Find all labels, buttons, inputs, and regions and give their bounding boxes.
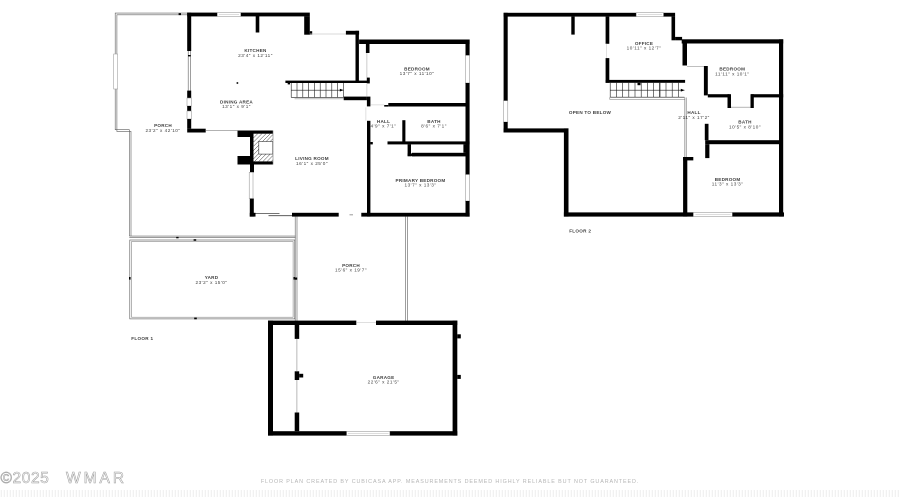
- svg-text:11'3" x 13'3": 11'3" x 13'3": [712, 182, 744, 187]
- svg-text:13'7" x 11'10": 13'7" x 11'10": [400, 71, 435, 76]
- svg-text:FLOOR 2: FLOOR 2: [569, 229, 591, 234]
- svg-text:22'6" x 21'5": 22'6" x 21'5": [368, 379, 400, 384]
- svg-text:23'2" x 42'10": 23'2" x 42'10": [145, 128, 180, 133]
- svg-text:8'6" x 7'1": 8'6" x 7'1": [421, 123, 447, 128]
- svg-text:FLOOR PLAN CREATED BY CUBICASA: FLOOR PLAN CREATED BY CUBICASA APP. MEAS…: [261, 479, 639, 485]
- svg-text:2'11" x 17'2": 2'11" x 17'2": [678, 115, 710, 120]
- svg-text:16'1" x 25'0": 16'1" x 25'0": [296, 161, 328, 166]
- svg-text:4'9" x 7'1": 4'9" x 7'1": [371, 123, 397, 128]
- svg-text:WMAR: WMAR: [66, 470, 127, 487]
- svg-text:FLOOR 1: FLOOR 1: [131, 336, 153, 341]
- svg-text:13'1" x 9'1": 13'1" x 9'1": [222, 104, 251, 109]
- svg-text:10'5" x 8'10": 10'5" x 8'10": [729, 125, 761, 130]
- svg-text:13'7" x 13'3": 13'7" x 13'3": [405, 183, 437, 188]
- svg-text:10'11" x 12'7": 10'11" x 12'7": [627, 46, 662, 51]
- svg-text:©2025: ©2025: [1, 470, 50, 487]
- svg-text:23'2" x 15'0": 23'2" x 15'0": [196, 280, 228, 285]
- svg-text:11'11" x 10'1": 11'11" x 10'1": [715, 71, 749, 76]
- svg-text:23'4" x 12'11": 23'4" x 12'11": [238, 53, 273, 58]
- svg-text:OPEN TO BELOW: OPEN TO BELOW: [569, 110, 612, 115]
- svg-text:15'6" x 19'7": 15'6" x 19'7": [335, 268, 367, 273]
